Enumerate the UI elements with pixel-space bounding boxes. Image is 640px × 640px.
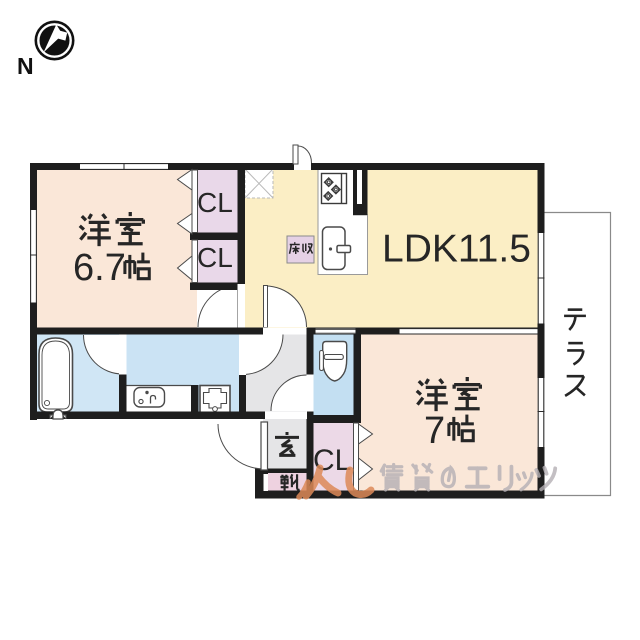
svg-text:N: N [17,53,34,79]
svg-text:CL: CL [197,242,233,273]
svg-text:6.7: 6.7 [73,247,126,289]
svg-text:CL: CL [197,187,233,218]
svg-text:LDK11.5: LDK11.5 [382,228,531,271]
svg-text:7: 7 [424,410,445,452]
